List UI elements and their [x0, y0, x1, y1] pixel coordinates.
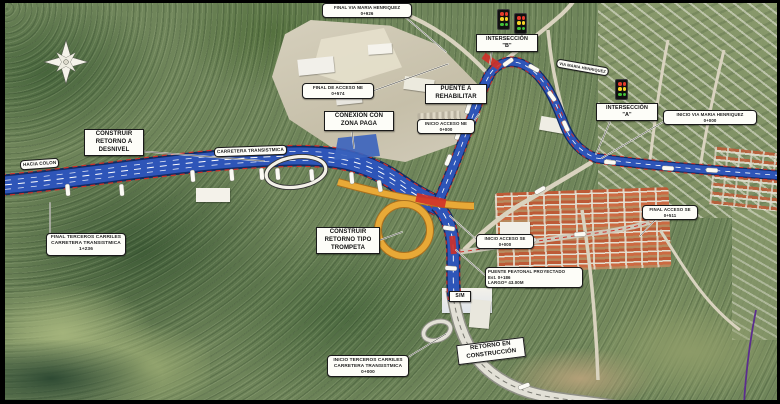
traffic-light-icon: [615, 79, 628, 100]
label-line: 0+000: [330, 369, 406, 375]
label-inicio-acceso-se: INICIO ACCESO SE 0+000: [476, 234, 534, 249]
label-line: RETORNO A: [87, 139, 141, 147]
label-inicio-acceso-ne: INICIO ACCESO NE 0+000: [417, 119, 475, 134]
frame-edge-bottom: [0, 400, 780, 404]
label-interseccion-b: INTERSECCIÓN "B": [476, 34, 538, 52]
label-line: "B": [479, 43, 535, 50]
label-line: CARRETERA TRANSISTMICA: [217, 147, 284, 155]
traffic-light-icon: [514, 13, 527, 34]
label-construir-retorno-desnivel: CONSTRUIR RETORNO A DESNIVEL: [84, 129, 144, 156]
label-line: CONEXIÓN CON: [327, 113, 391, 121]
label-line: 0+574: [305, 91, 371, 97]
label-line: 1+236: [49, 247, 123, 253]
traffic-light-icon: [497, 9, 510, 30]
label-line: INICIO ACCESO NE: [420, 121, 472, 127]
label-line: INTERSECCIÓN: [479, 36, 535, 43]
label-line: FINAL ACCESO SE: [645, 207, 695, 213]
boundary-line: [744, 310, 756, 404]
toll-plaza: [334, 134, 380, 160]
map-canvas: CONSTRUIR RETORNO A DESNIVEL HACIA COLON…: [0, 0, 780, 404]
label-puente-a-rehabilitar: PUENTE A REHABILITAR: [425, 84, 487, 104]
label-line: CONSTRUIR: [87, 131, 141, 139]
label-line: PUENTE A: [428, 86, 484, 94]
compass-rose-icon: [44, 40, 88, 84]
label-line: CONSTRUIR: [319, 229, 377, 237]
label-construir-retorno-trompeta: CONSTRUIR RETORNO TIPO TROMPETA: [316, 227, 380, 254]
label-inicio-via-maria-henriquez: INICIO VIA MARIA HENRIQUEZ 0+000: [663, 110, 757, 125]
label-final-acceso-se: FINAL ACCESO SE 0+511: [642, 205, 698, 220]
label-final-terceros-carriles: FINAL TERCEROS CARRILES CARRETERA TRANSI…: [46, 233, 126, 256]
label-final-de-acceso-ne: FINAL DE ACCESO NE 0+574: [302, 83, 374, 99]
label-line: FINAL VIA MARIA HENRIQUEZ: [325, 5, 409, 11]
label-line: DESNIVEL: [87, 147, 141, 155]
label-inicio-terceros-carriles: INICIO TERCEROS CARRILES CARRETERA TRANS…: [327, 355, 409, 377]
label-line: TROMPETA: [319, 245, 377, 253]
label-line: INTERSECCIÓN: [599, 105, 655, 112]
label-conexion-zona-paga: CONEXIÓN CON ZONA PAGA: [324, 111, 394, 131]
label-line: LARGO= 43.00M: [488, 280, 580, 286]
label-line: "A": [599, 112, 655, 119]
label-line: REHABILITAR: [428, 94, 484, 102]
map-overlay: [0, 0, 780, 404]
label-line: 0+000: [666, 118, 754, 124]
label-line: 0+000: [420, 127, 472, 133]
label-line: ZONA PAGA: [327, 121, 391, 129]
label-line: 0+926: [325, 11, 409, 17]
label-line: S/M: [452, 293, 468, 300]
road-south-branch: [430, 205, 462, 300]
label-line: INICIO VIA MARIA HENRIQUEZ: [666, 112, 754, 118]
label-line: FINAL DE ACCESO NE: [305, 85, 371, 91]
label-sm-badge: S/M: [449, 291, 471, 302]
label-line: INICIO ACCESO SE: [479, 236, 531, 242]
label-puente-peatonal: PUENTE PEATONAL PROYECTADO Est. 0+186 LA…: [485, 267, 583, 288]
label-final-via-maria-henriquez: FINAL VIA MARIA HENRIQUEZ 0+926: [322, 3, 412, 18]
label-line: 0+511: [645, 213, 695, 219]
label-line: 0+000: [479, 242, 531, 248]
frame-edge-left: [0, 0, 5, 404]
label-line: HACIA COLON: [23, 160, 57, 168]
label-line: RETORNO TIPO: [319, 237, 377, 245]
frame-edge-top: [0, 0, 780, 3]
label-interseccion-a: INTERSECCIÓN "A": [596, 103, 658, 121]
